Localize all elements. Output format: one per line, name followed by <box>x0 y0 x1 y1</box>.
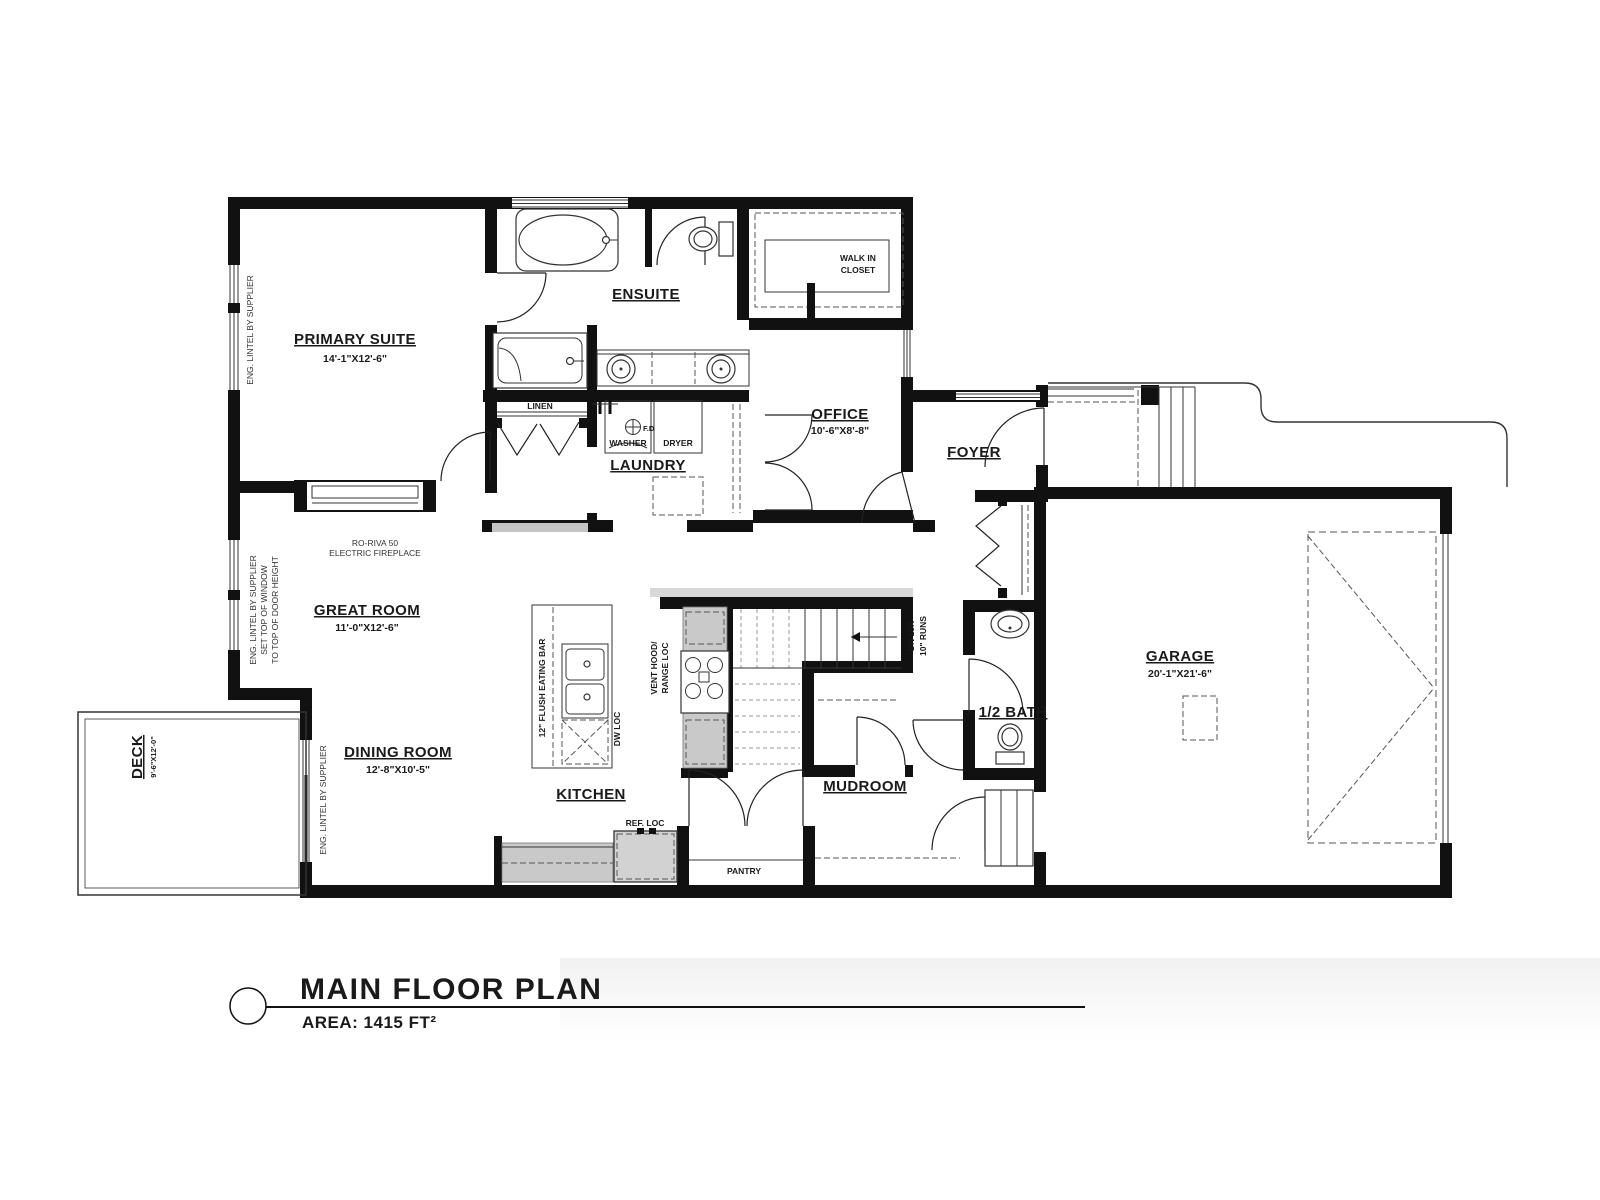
kitchen-counter <box>502 843 613 882</box>
window-ensuite-top <box>512 198 628 208</box>
dims-office: 10'-6"X8'-8" <box>811 425 869 437</box>
half-bath-sink <box>991 610 1029 638</box>
label-dining-room: DINING ROOM <box>344 744 452 761</box>
label-ensuite: ENSUITE <box>612 286 680 303</box>
title-bubble <box>230 988 266 1024</box>
label-floor-drain: F.D <box>643 424 655 433</box>
label-ref-loc: REF. LOC <box>626 818 665 828</box>
label-vent-hood-1: VENT HOOD/ <box>649 641 659 695</box>
label-laundry: LAUNDRY <box>610 457 686 474</box>
ensuite-vanity <box>597 350 749 386</box>
laundry-plumbing <box>593 394 740 515</box>
windows <box>226 198 1134 650</box>
plan-title: MAIN FLOOR PLAN <box>300 973 602 1006</box>
door-ensuite <box>497 273 546 322</box>
plan-area: AREA: 1415 FT² <box>302 1013 437 1032</box>
door-office-french <box>765 415 812 510</box>
note-lintel-deck: ENG. LINTEL BY SUPPLIER <box>318 745 328 855</box>
label-primary-suite: PRIMARY SUITE <box>294 331 416 348</box>
door-mudroom <box>857 717 905 765</box>
range-counter <box>681 607 729 768</box>
label-walk-in-closet-2: CLOSET <box>841 265 876 275</box>
door-primary-suite <box>441 432 490 481</box>
door-linen-bifold <box>497 422 579 455</box>
dims-garage: 20'-1"X21'-6" <box>1148 668 1212 680</box>
note-lintel-great-2: SET TOP OF WINDOW <box>259 565 269 655</box>
label-pantry: PANTRY <box>727 866 761 876</box>
label-dryer: DRYER <box>663 438 692 448</box>
note-lintel-great-3: TO TOP OF DOOR HEIGHT <box>270 556 280 664</box>
note-fireplace-1: RO-RIVA 50 <box>352 538 398 548</box>
window-primary-left <box>226 265 242 390</box>
ensuite-shower-tub <box>493 333 587 388</box>
porch-railing <box>1048 389 1134 396</box>
label-mudroom: MUDROOM <box>823 778 907 795</box>
dims-deck: 9'-6"X12'-0" <box>149 736 158 778</box>
fridge <box>614 828 677 882</box>
fireplace <box>295 481 435 511</box>
label-walk-in-closet-1: WALK IN <box>840 253 876 263</box>
note-lintel-primary: ENG. LINTEL BY SUPPLIER <box>245 275 255 385</box>
label-washer: WASHER <box>609 438 646 448</box>
note-lintel-great-1: ENG. LINTEL BY SUPPLIER <box>248 555 258 665</box>
window-foyer-sidelite <box>956 392 1040 400</box>
label-stairs-runs: 10" RUNS <box>918 616 928 656</box>
dims-primary-suite: 14'-1"X12'-6" <box>323 353 387 365</box>
door-coat-closet-bifold <box>976 505 1028 595</box>
label-kitchen: KITCHEN <box>556 786 625 803</box>
front-porch <box>1048 383 1507 487</box>
label-eating-bar: 12" FLUSH EATING BAR <box>537 639 547 738</box>
label-stairs-dn: DN 15R <box>906 621 916 651</box>
window-great-room-left <box>226 540 242 650</box>
door-pantry-pair <box>689 770 803 826</box>
walk-in-closet-shelving <box>755 213 903 318</box>
dims-great-room: 11'-0"X12'-6" <box>335 622 398 634</box>
stairs <box>733 609 901 764</box>
garage-entry-steps <box>985 790 1033 866</box>
half-bath-toilet <box>996 724 1024 764</box>
door-garage-man <box>932 797 985 850</box>
garage-overhead-door <box>1183 532 1448 843</box>
door-mudroom-hall <box>913 720 963 770</box>
label-garage: GARAGE <box>1146 648 1214 665</box>
label-linen: LINEN <box>527 401 553 411</box>
label-vent-hood-2: RANGE LOC <box>660 643 670 694</box>
label-dw-loc: DW LOC <box>612 712 622 746</box>
floor-plan-drawing: PRIMARY SUITE 14'-1"X12'-6" ENSUITE WALK… <box>0 0 1600 1200</box>
deck-outline <box>78 712 306 895</box>
label-half-bath: 1/2 BATH <box>979 704 1048 721</box>
note-fireplace-2: ELECTRIC FIREPLACE <box>329 548 421 558</box>
label-office: OFFICE <box>811 406 868 423</box>
linen-shelf <box>497 412 587 416</box>
room-labels: PRIMARY SUITE 14'-1"X12'-6" ENSUITE WALK… <box>129 253 1214 876</box>
label-deck: DECK <box>129 735 146 779</box>
label-foyer: FOYER <box>947 444 1001 461</box>
label-great-room: GREAT ROOM <box>314 602 420 619</box>
water-closet-toilet <box>689 222 733 256</box>
floor-plan-page: PRIMARY SUITE 14'-1"X12'-6" ENSUITE WALK… <box>0 0 1600 1200</box>
window-office-right <box>902 330 912 377</box>
ensuite-tub <box>516 209 618 271</box>
dims-dining-room: 12'-8"X10'-5" <box>366 764 430 776</box>
